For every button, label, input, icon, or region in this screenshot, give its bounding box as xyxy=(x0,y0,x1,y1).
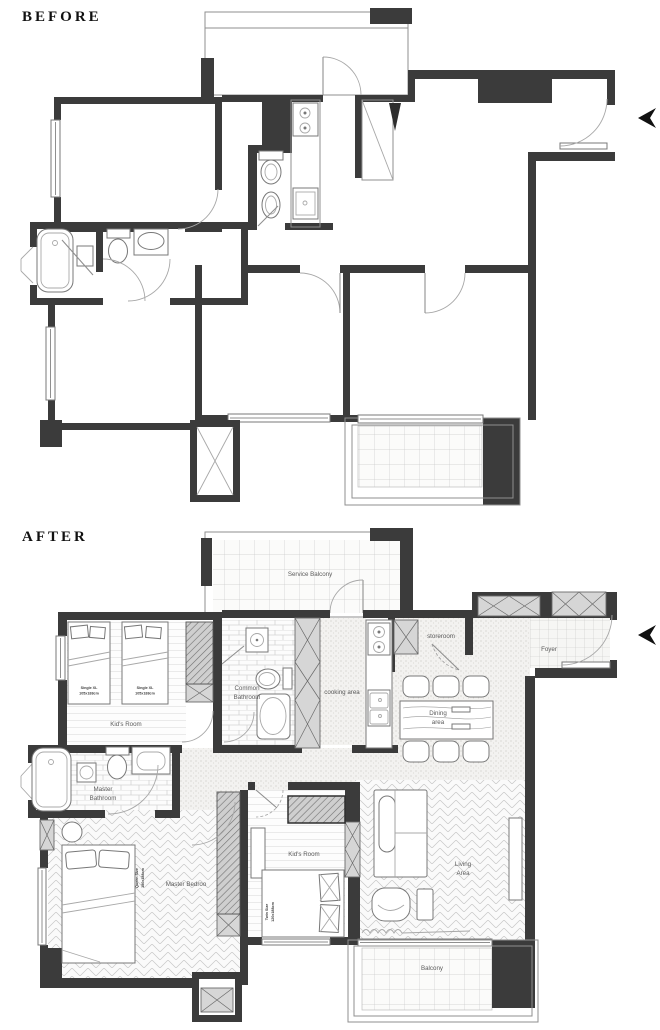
twin-bed-size: 120x188cm xyxy=(271,901,275,921)
single-bed-1-size: 105x188cm xyxy=(79,692,99,696)
single-bed-2-size: 105x188cm xyxy=(135,692,155,696)
after-floorplan: Service Balcony Kid's Room Common Bathro… xyxy=(21,528,656,1022)
common-bathroom-label-1: Common xyxy=(234,685,260,692)
living-area-label-1: Living xyxy=(455,861,472,868)
after-kitchen xyxy=(366,620,392,748)
armchair-icon xyxy=(372,888,410,921)
kitchen-sink-icon xyxy=(293,188,318,219)
chair-icon xyxy=(463,676,489,697)
entry-arrow-icon xyxy=(638,108,656,128)
master-bedroom-label: Master Bedroo xyxy=(166,881,207,888)
kids-room-1-label: Kid's Room xyxy=(110,721,141,728)
common-bathroom-label-2: Bathroom xyxy=(234,694,261,701)
master-bathroom-label-1: Master xyxy=(94,786,113,793)
wardrobe-icon xyxy=(186,622,213,684)
single-bed-1-label: Single XL xyxy=(81,686,99,690)
after-dining-set xyxy=(400,676,493,762)
entry-arrow-icon xyxy=(638,625,656,645)
twin-bed-label: Twin Size xyxy=(265,904,269,921)
before-floorplan xyxy=(21,8,656,505)
foyer-label: Foyer xyxy=(541,646,557,653)
floorplan-page: BEFORE xyxy=(0,0,660,1030)
cooking-area-label: cooking area xyxy=(324,689,360,696)
bathtub-icon xyxy=(257,694,290,739)
chair-icon xyxy=(403,676,429,697)
master-bathroom-label-2: Bathroom xyxy=(90,795,117,802)
kids-room-2-label: Kid's Room xyxy=(288,851,319,858)
small-sink-icon xyxy=(77,246,93,266)
chair-icon xyxy=(433,676,459,697)
bathtub-icon xyxy=(32,748,71,811)
dining-table-icon xyxy=(400,701,493,739)
toilet-icon xyxy=(256,669,280,689)
chair-icon xyxy=(463,741,489,762)
storeroom-label: storeroom xyxy=(427,633,455,640)
door-leaf-icon xyxy=(389,103,401,131)
toilet-icon xyxy=(106,747,129,755)
after-title: AFTER xyxy=(22,529,88,545)
casement-window-icon xyxy=(21,763,33,800)
side-table-icon xyxy=(417,889,433,920)
before-title: BEFORE xyxy=(22,9,102,25)
dining-area-label-1: Dining xyxy=(429,710,447,717)
balcony-label: Balcony xyxy=(421,965,444,972)
stove-icon xyxy=(368,623,390,655)
toilet-icon xyxy=(107,229,130,238)
casement-window-icon xyxy=(21,247,33,283)
before-service-balcony xyxy=(201,8,412,97)
before-shaft xyxy=(190,420,240,502)
queen-bed-label: Queen Size xyxy=(135,868,139,888)
chair-icon xyxy=(403,741,429,762)
toilet-icon xyxy=(259,151,283,160)
queen-bed-size: 180x188cm xyxy=(141,867,145,887)
wardrobe-icon xyxy=(217,792,240,914)
single-bed-2-label: Single XL xyxy=(137,686,155,690)
before-walls xyxy=(30,70,615,505)
side-table-icon xyxy=(62,822,82,842)
before-after-floorplans: BEFORE xyxy=(0,0,660,1030)
service-balcony-label: Service Balcony xyxy=(288,571,333,578)
tv-console-icon xyxy=(509,818,522,900)
wardrobe-icon xyxy=(288,796,345,823)
bathtub-icon xyxy=(37,229,73,292)
living-area-label-2: Area xyxy=(456,870,470,877)
after-shaft xyxy=(192,972,242,1022)
dining-area-label-2: area xyxy=(432,719,445,726)
chair-icon xyxy=(433,741,459,762)
